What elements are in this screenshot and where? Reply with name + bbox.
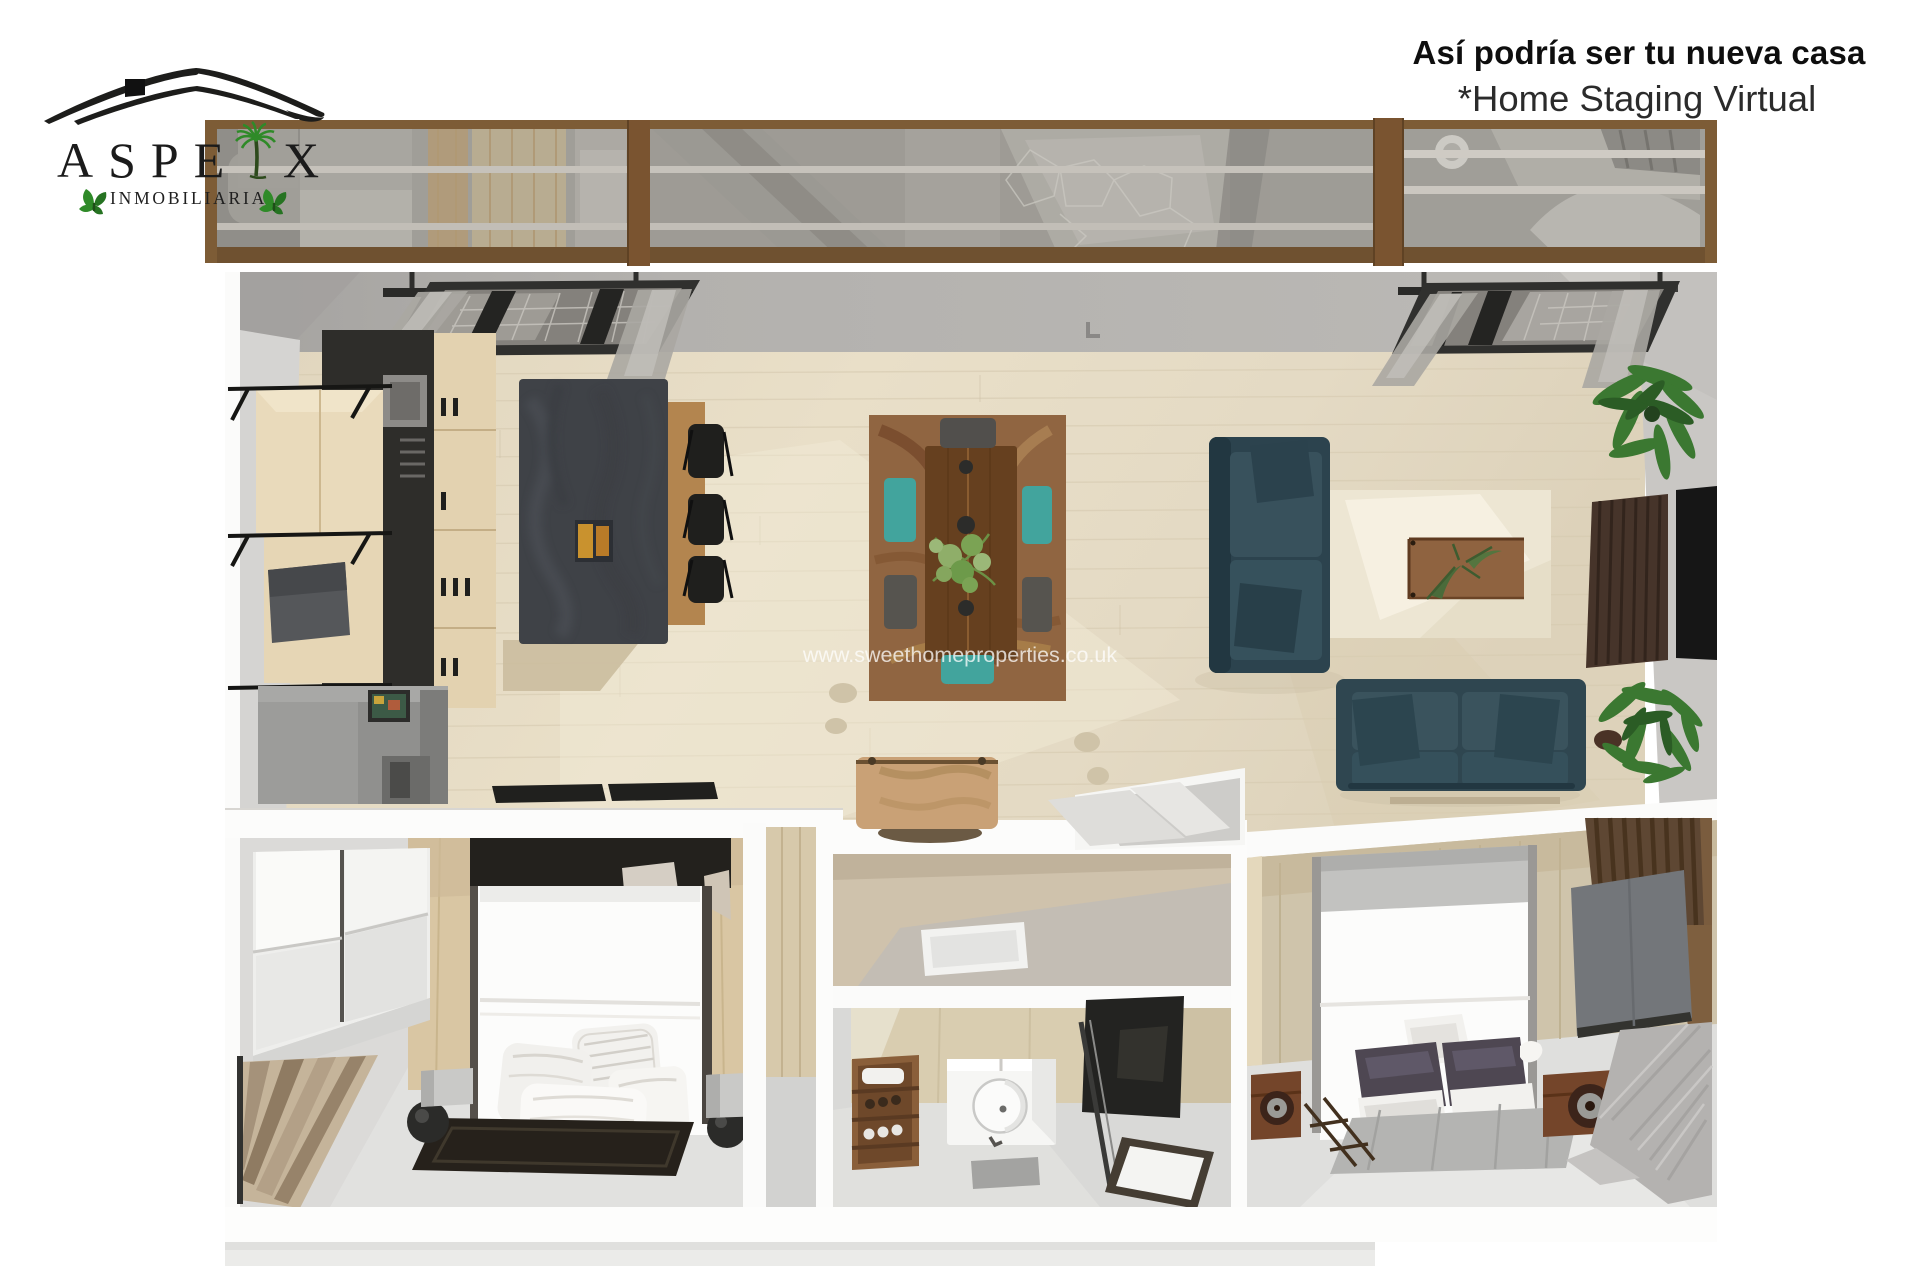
svg-text:ASPE: ASPE <box>57 132 239 188</box>
svg-text:www.sweethomeproperties.co.uk: www.sweethomeproperties.co.uk <box>802 643 1118 667</box>
svg-text:*Home Staging Virtual: *Home Staging Virtual <box>1458 78 1816 119</box>
svg-text:Así podría ser tu nueva casa: Así podría ser tu nueva casa <box>1412 34 1866 71</box>
svg-text:INMOBILIARIA: INMOBILIARIA <box>110 188 267 208</box>
svg-text:X: X <box>283 132 319 188</box>
